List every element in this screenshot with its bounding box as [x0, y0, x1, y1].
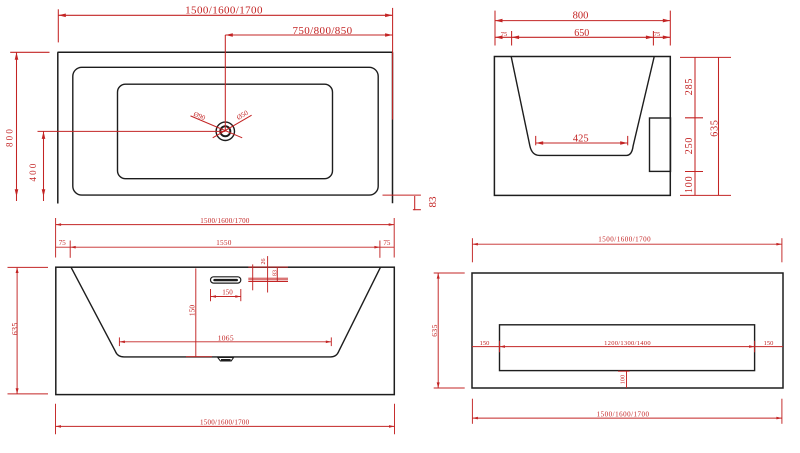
svg-text:75: 75 [654, 31, 661, 38]
svg-text:150: 150 [222, 289, 233, 297]
svg-text:83: 83 [427, 196, 439, 208]
svg-text:26: 26 [261, 259, 267, 265]
svg-text:750/800/850: 750/800/850 [292, 25, 352, 37]
svg-text:650: 650 [574, 28, 589, 39]
svg-text:400: 400 [28, 161, 38, 181]
svg-text:1065: 1065 [218, 333, 234, 342]
svg-text:100: 100 [621, 375, 627, 385]
svg-text:150: 150 [764, 340, 774, 347]
svg-text:1550: 1550 [216, 239, 232, 247]
svg-text:425: 425 [573, 134, 589, 145]
svg-text:800: 800 [573, 10, 589, 21]
svg-text:100: 100 [684, 176, 695, 193]
svg-text:1500/1600/1700: 1500/1600/1700 [598, 236, 651, 244]
svg-text:75: 75 [59, 239, 67, 247]
svg-text:Ø90: Ø90 [192, 110, 207, 122]
svg-text:1500/1600/1700: 1500/1600/1700 [200, 419, 250, 427]
svg-text:75: 75 [501, 31, 508, 38]
svg-text:75: 75 [383, 239, 391, 247]
svg-text:Ø50: Ø50 [235, 108, 250, 121]
svg-text:800: 800 [4, 127, 14, 147]
svg-text:1500/1600/1700: 1500/1600/1700 [597, 410, 650, 418]
svg-text:150: 150 [480, 340, 490, 347]
svg-text:635: 635 [430, 324, 439, 336]
svg-text:250: 250 [684, 137, 695, 154]
svg-text:83: 83 [273, 270, 279, 276]
svg-text:1500/1600/1700: 1500/1600/1700 [200, 217, 250, 225]
svg-text:1500/1600/1700: 1500/1600/1700 [185, 5, 263, 17]
svg-text:635: 635 [10, 322, 19, 335]
svg-text:1200/1300/1400: 1200/1300/1400 [604, 340, 651, 347]
svg-text:635: 635 [710, 119, 721, 136]
svg-text:285: 285 [684, 78, 695, 95]
svg-text:150: 150 [188, 305, 197, 317]
